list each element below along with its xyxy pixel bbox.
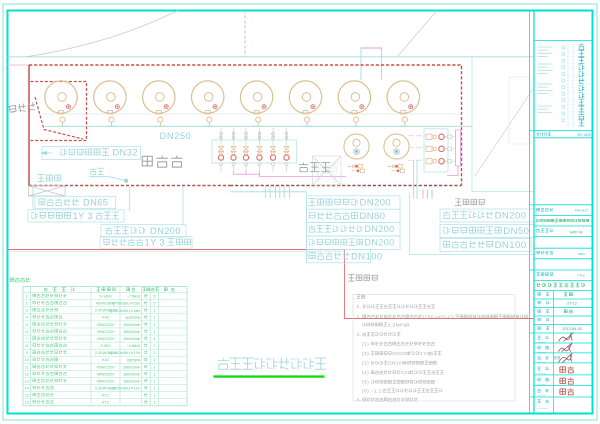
svg-text:K42: K42	[102, 316, 109, 320]
svg-text:4: 4	[26, 316, 28, 320]
svg-text:280m3/min: 280m3/min	[123, 365, 140, 369]
svg-text:5: 5	[153, 295, 155, 299]
svg-text:~7.54m2: ~7.54m2	[127, 295, 140, 299]
svg-text:5: 5	[153, 302, 155, 306]
svg-text:C20: C20	[401, 370, 411, 376]
svg-text:#CPP/PH: #CPP/PH	[126, 316, 141, 320]
svg-text:DN200: DN200	[365, 224, 395, 234]
svg-text:8: 8	[26, 344, 28, 348]
svg-text:DN80: DN80	[360, 211, 386, 222]
svg-text:11: 11	[25, 365, 29, 369]
svg-text:6: 6	[26, 330, 28, 334]
svg-text:4.: 4.	[357, 397, 362, 403]
svg-text:1: 1	[26, 295, 28, 299]
svg-text:12: 12	[25, 372, 29, 376]
svg-text:S-800: S-800	[100, 344, 110, 348]
svg-text:ZY-12: ZY-12	[567, 302, 577, 306]
svg-text:280m3/min: 280m3/min	[123, 372, 140, 376]
svg-text:280m3/min: 280m3/min	[123, 337, 140, 341]
svg-text:(2): (2)	[362, 351, 369, 357]
svg-text:DN200: DN200	[360, 198, 392, 209]
svg-text:1: 1	[153, 309, 155, 313]
svg-text:#(PP)PH: #(PP)PH	[127, 358, 141, 362]
svg-text:~1.2: ~1.2	[371, 388, 382, 394]
svg-text:DN32: DN32	[112, 147, 138, 158]
svg-text:9: 9	[26, 351, 28, 355]
svg-text:5: 5	[26, 323, 28, 327]
svg-text:(6): (6)	[362, 388, 369, 394]
svg-text:45W/220V: 45W/220V	[97, 379, 115, 383]
svg-text:45W/220V: 45W/220V	[97, 365, 115, 369]
svg-text:DN200: DN200	[150, 226, 181, 236]
svg-text:Q=28.3m3/h,H=18m: Q=28.3m3/h,H=18m	[109, 309, 140, 313]
svg-text:(5): (5)	[362, 380, 369, 386]
svg-text:280m3/min: 280m3/min	[123, 323, 140, 327]
svg-text:S-1400: S-1400	[99, 295, 111, 299]
svg-text:Q=28.3m3/h,H=17m: Q=28.3m3/h,H=17m	[109, 351, 140, 355]
svg-text:1: 1	[153, 379, 155, 383]
svg-text:3: 3	[26, 309, 28, 313]
svg-text:280m3/min: 280m3/min	[123, 330, 140, 334]
svg-text:KT2: KT2	[102, 401, 109, 405]
svg-text:(4): (4)	[362, 370, 369, 376]
svg-text:1: 1	[153, 323, 155, 327]
svg-text:DN200: DN200	[392, 351, 409, 357]
svg-text:2: 2	[26, 302, 28, 306]
svg-text:1: 1	[153, 365, 155, 369]
svg-text:1: 1	[153, 394, 155, 398]
svg-text:1Y 3: 1Y 3	[145, 238, 166, 248]
svg-text:DN100: DN100	[351, 251, 383, 262]
svg-text:Q=50m3/h,H=23m: Q=50m3/h,H=23m	[112, 302, 140, 306]
svg-text:1: 1	[153, 337, 155, 341]
svg-text:6457-W: 6457-W	[570, 231, 583, 235]
svg-text:1: 1	[153, 316, 155, 320]
svg-text:1: 1	[153, 401, 155, 405]
svg-text:45W/220V: 45W/220V	[97, 337, 115, 341]
svg-text:45W/220V: 45W/220V	[97, 372, 115, 376]
svg-text:(3): (3)	[362, 361, 369, 367]
svg-text:2013-09-30: 2013-09-30	[562, 327, 581, 331]
svg-text:DN50: DN50	[503, 226, 529, 237]
svg-text:2: 2	[153, 351, 155, 355]
svg-text:45W/220V: 45W/220V	[97, 323, 115, 327]
svg-text:7: 7	[26, 337, 28, 341]
svg-text:K42: K42	[102, 358, 109, 362]
svg-text:~0.68m2: ~0.68m2	[127, 344, 140, 348]
svg-text:1: 1	[153, 372, 155, 376]
svg-text:1Y 3: 1Y 3	[73, 211, 94, 221]
svg-text:(1): (1)	[362, 341, 369, 347]
svg-text:(25F-pH7-C): (25F-pH7-C)	[423, 314, 454, 320]
svg-text:10: 10	[25, 358, 29, 362]
svg-text:DN200: DN200	[495, 210, 527, 221]
svg-text:437-1528: 437-1528	[577, 133, 591, 137]
svg-text:14: 14	[25, 386, 29, 390]
svg-text:2.: 2.	[357, 314, 362, 320]
svg-text:13: 13	[25, 379, 29, 383]
svg-text:DN250: DN250	[160, 131, 192, 141]
svg-text:16: 16	[25, 401, 29, 405]
svg-text:DN100: DN100	[495, 240, 527, 251]
svg-text:1: 1	[153, 386, 155, 390]
svg-text:084C: 084C	[578, 252, 586, 256]
svg-text:1: 1	[153, 330, 155, 334]
svg-text:280m3/min: 280m3/min	[123, 380, 140, 384]
svg-text:45W/220V: 45W/220V	[97, 330, 115, 334]
svg-text:DN65: DN65	[83, 198, 108, 208]
svg-text:3.: 3.	[357, 332, 362, 338]
svg-text:2: 2	[153, 344, 155, 348]
svg-text:TITLE: TITLE	[577, 274, 585, 278]
svg-text:15: 15	[25, 394, 29, 398]
svg-text:1: 1	[153, 358, 155, 362]
svg-text:0.2MPa: 0.2MPa	[388, 322, 407, 328]
svg-text:DN200: DN200	[365, 238, 395, 248]
svg-text:1.: 1.	[357, 304, 362, 310]
svg-text:Q=15m3/h,H=17m: Q=15m3/h,H=17m	[112, 387, 140, 391]
svg-text:PROJECT: PROJECT	[575, 209, 589, 213]
svg-text:1Y3: 1Y3	[420, 351, 430, 357]
svg-text:DN100: DN100	[388, 361, 405, 367]
svg-text:KT1: KT1	[102, 394, 109, 398]
